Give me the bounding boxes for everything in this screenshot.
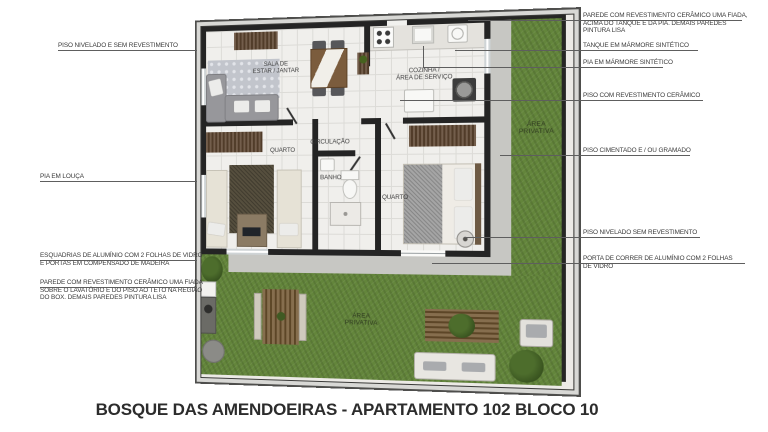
bedroom1-tv [243,227,261,236]
leader-line [423,67,663,68]
double-bed-blanket [404,165,442,244]
bedroom2-sliding-door [401,250,445,256]
bath-label: BANHO [308,174,353,182]
bedroom2-label: QUARTO [375,194,415,201]
sofa-pillow-2 [234,101,249,113]
single-bed-2 [277,169,302,248]
single-bed-1 [206,170,227,248]
side-yard-label: ÁREA PRIVATIVA [505,120,568,136]
bedroom2-door-leaf [385,123,395,139]
wall-kitchen-bottom-a [361,118,381,124]
leader-line [464,237,700,238]
sheet-title: BOSQUE DAS AMENDOEIRAS - APARTAMENTO 102… [0,400,694,420]
shower-drain [344,212,348,216]
callout-pia-em-louca: PIA EM LOUÇA [40,173,84,181]
double-bed-headboard [475,163,481,244]
callout-piso-ceramico: PISO COM REVESTIMENTO CERÂMICO [583,92,700,100]
wall-bath-bedroom2 [375,124,381,250]
wall-kitchen-bottom-b [403,116,484,123]
garden-bush [509,349,544,383]
sofa-pillow-3 [255,100,270,112]
garden-sofa-pillow-2 [462,362,486,372]
garden-armchair-cushion [526,324,547,338]
floor-plan: ÁREA PRIVATIVA ÁREA PRIVATIVA [195,7,581,397]
leader-line [455,50,698,51]
garden-label: ÁREA PRIVATIVA [332,312,391,328]
leader-line [400,100,703,101]
leader-line [432,263,745,264]
callout-pia-marmore: PIA EM MÁRMORE SINTÉTICO [583,59,673,67]
leader-line [423,46,424,67]
leader-line [40,260,197,261]
bbq-kettle [204,305,212,314]
picnic-table-plant [277,312,286,321]
deck-centerpiece-plant [448,313,475,338]
tv-console [234,31,278,50]
garden-sofa-pillow-1 [423,361,446,371]
bath-door-leaf [350,156,361,171]
wardrobe-bedroom2 [409,125,476,147]
wall-hall-bath [318,150,355,156]
bedroom1-label: QUARTO [259,147,307,155]
bedroom1-bottom-window [227,249,269,255]
callout-parede-tanque: PAREDE COM REVESTIMENTO CERÂMICO UMA FIA… [583,12,747,35]
property-right-wall [562,14,566,382]
leader-line [40,181,197,182]
floor-fan [457,230,474,247]
picnic-bench-right [299,294,307,341]
leader-line [40,287,197,288]
garden-round-table [202,339,224,363]
callout-piso-nivelado-right: PISO NIVELADO SEM REVESTIMENTO [583,229,697,237]
callout-piso-nivelado-left: PISO NIVELADO E SEM REVESTIMENTO [58,42,178,50]
garden-plant [201,256,222,282]
wardrobe-bedroom1 [206,132,262,153]
leader-line [58,50,197,51]
washing-machine [452,78,476,102]
apartment-unit: SALA DE ESTAR / JANTAR COZINHA / ÁREA DE… [200,16,490,257]
callout-tanque: TANQUE EM MÁRMORE SINTÉTICO [583,42,689,50]
leader-line [500,155,690,156]
callout-parede-box: PAREDE COM REVESTIMENTO CERÂMICO UMA FIA… [40,279,203,302]
floor-plan-sheet: ÁREA PRIVATIVA ÁREA PRIVATIVA [0,0,768,432]
bbq-grill [200,297,216,334]
living-label: SALA DE ESTAR / JANTAR [245,60,306,76]
callout-piso-cimentado: PISO CIMENTADO E / OU GRAMADO [583,147,691,155]
bath-sink [320,158,335,171]
single-bed-2-pillow [280,224,298,236]
picnic-bench-left [254,293,262,340]
toilet-bowl [343,179,358,199]
double-bed-pillow-1 [455,168,472,200]
hall-label: CIRCULAÇÃO [301,138,359,146]
sofa [225,94,279,121]
kitchen-window [484,39,490,74]
stove [373,27,394,49]
single-bed-1-pillow [207,222,225,236]
leader-line [468,20,742,21]
dining-table [310,48,347,89]
kitchen-label: COZINHA / ÁREA DE SERVIÇO [391,66,458,82]
kitchen-sink [412,25,434,44]
